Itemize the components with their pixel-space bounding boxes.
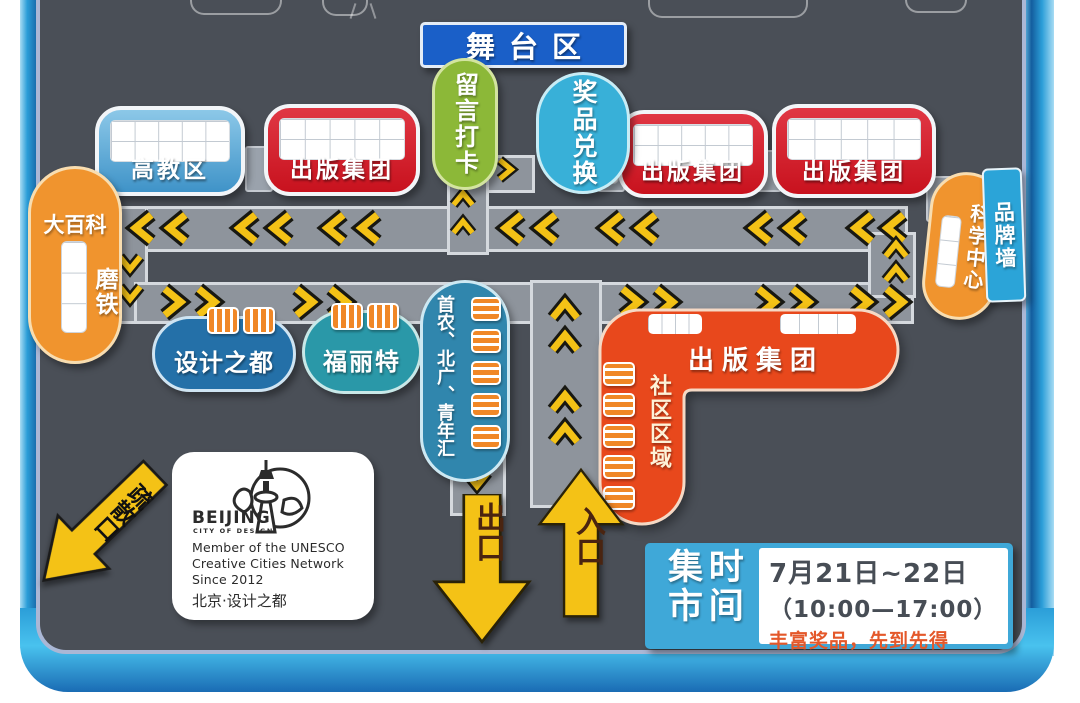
booth-higher-ed: 高教区 — [95, 106, 245, 196]
exit-label: 出口 — [465, 502, 509, 562]
corridor-right-turn — [868, 232, 916, 298]
booth-label: 出版集团 — [622, 152, 764, 186]
schedule-hours: （10:00—17:00） — [769, 590, 998, 624]
market-schedule: 集市 时间 7月21日~22日 （10:00—17:00） 丰富奖品，先到先得 — [645, 543, 1013, 649]
booth-label: 设计之都 — [174, 343, 274, 378]
top-structure-outline — [322, 0, 368, 16]
logo-brand-sub: CITY OF DESIGN — [193, 527, 274, 535]
platform-wall-right — [1024, 0, 1054, 656]
booth-label: 首农、北广、青年汇 — [431, 295, 457, 457]
schedule-body: 7月21日~22日 （10:00—17:00） 丰富奖品，先到先得 — [759, 548, 1008, 644]
awning-icon — [367, 303, 399, 330]
awning-icon — [471, 361, 501, 385]
schedule-title-col: 时间 — [704, 548, 741, 644]
awning-icon — [603, 424, 635, 448]
booth-table — [648, 314, 702, 334]
booth-label: 出版集团 — [268, 150, 416, 184]
booth-message-checkin: 留言打卡 — [432, 58, 498, 190]
booth-publishing-1: 出版集团 — [264, 104, 420, 196]
top-structure-outline — [648, 0, 808, 18]
schedule-title-col: 集市 — [663, 548, 700, 644]
logo-member-line: Since 2012 — [192, 572, 264, 587]
entrance-label: 入口 — [565, 506, 609, 566]
booth-label: 福丽特 — [323, 342, 401, 377]
top-structure-outline — [905, 0, 967, 13]
exit-arrow: 出口 — [428, 494, 536, 644]
venue-map: 舞台区 高教区 出版集团 出版集团 出版集团 留言打卡 奖品兑换 科学中心 品牌… — [0, 0, 1080, 703]
booth-label: 品牌墙 — [988, 200, 1020, 270]
booth-label: 磨铁 — [87, 267, 121, 317]
awning-icon — [471, 297, 501, 321]
awning-icon — [603, 393, 635, 417]
top-structure-outline — [190, 0, 282, 15]
awning-icon — [331, 303, 399, 330]
booth-shounong-beiguang-youth: 首农、北广、青年汇 — [420, 280, 510, 482]
awning-icon — [207, 307, 239, 334]
schedule-title: 集市 时间 — [650, 548, 754, 644]
booth-label: 奖品兑换 — [565, 79, 601, 187]
awning-icon — [243, 307, 275, 334]
booth-label: 出版集团 — [656, 340, 856, 377]
awning-icon — [471, 425, 501, 449]
booth-label: 社区区域 — [642, 374, 674, 470]
booth-publishing-3: 出版集团 — [772, 104, 936, 198]
awning-icon — [471, 297, 501, 449]
booth-encyclopedia-motie: 大百科 磨铁 — [28, 166, 122, 364]
corridor-top-lane — [118, 206, 908, 252]
booth-community-zone: 出版集团 社区区域 — [596, 306, 912, 538]
booth-prize-exchange: 奖品兑换 — [536, 72, 630, 194]
entrance-arrow: 入口 — [534, 464, 628, 622]
schedule-dates: 7月21日~22日 — [769, 553, 998, 590]
booth-fulite: 福丽特 — [302, 310, 422, 394]
schedule-note: 丰富奖品，先到先得 — [769, 626, 998, 653]
booth-label: 大百科 — [31, 209, 119, 239]
awning-icon — [471, 393, 501, 417]
awning-icon — [331, 303, 363, 330]
booth-label: 留言打卡 — [448, 72, 483, 176]
logo-brand: BEIJING — [192, 508, 271, 528]
logo-member-line: Member of the UNESCO — [192, 540, 345, 555]
booth-label: 出版集团 — [776, 152, 932, 186]
awning-icon — [603, 362, 635, 386]
booth-label: 高教区 — [99, 150, 241, 184]
booth-brand-wall: 品牌墙 — [982, 167, 1027, 302]
logo-cn-name: 北京·设计之都 — [192, 590, 287, 611]
booth-publishing-2: 出版集团 — [618, 110, 768, 198]
booth-table — [780, 314, 856, 334]
booth-design-capital: 设计之都 — [152, 316, 296, 392]
beijing-city-of-design-card: BEIJING CITY OF DESIGN Member of the UNE… — [172, 452, 374, 620]
awning-icon — [207, 307, 275, 334]
booth-table — [61, 241, 87, 333]
logo-member-line: Creative Cities Network — [192, 556, 344, 571]
awning-icon — [471, 329, 501, 353]
